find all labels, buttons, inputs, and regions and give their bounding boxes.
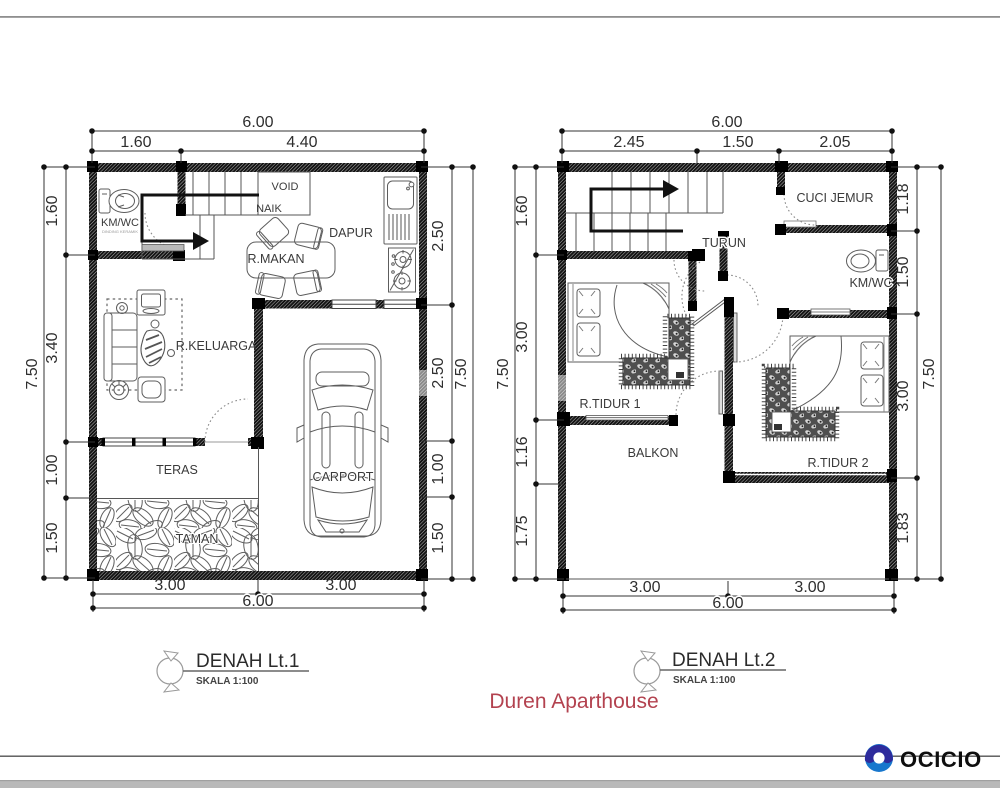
svg-text:7.50: 7.50: [453, 358, 470, 389]
svg-text:1.60: 1.60: [44, 195, 61, 226]
svg-text:DINDING KERAMIK: DINDING KERAMIK: [102, 229, 138, 234]
svg-text:1.18: 1.18: [895, 183, 912, 214]
svg-text:7.50: 7.50: [495, 358, 512, 389]
svg-text:3.00: 3.00: [514, 321, 531, 352]
svg-text:TURUN: TURUN: [702, 236, 746, 250]
svg-text:VOID: VOID: [272, 181, 299, 193]
svg-text:SKALA 1:100: SKALA 1:100: [196, 676, 259, 687]
svg-text:DENAH Lt.1: DENAH Lt.1: [196, 651, 299, 672]
svg-text:R.TIDUR 2: R.TIDUR 2: [807, 456, 868, 470]
svg-text:3.00: 3.00: [325, 577, 356, 594]
svg-text:3.00: 3.00: [794, 579, 825, 596]
svg-text:NAIK: NAIK: [256, 203, 282, 215]
svg-text:2.45: 2.45: [613, 134, 644, 151]
svg-text:Duren Aparthouse: Duren Aparthouse: [489, 690, 658, 713]
svg-text:1.16: 1.16: [514, 436, 531, 467]
svg-text:KM/WC: KM/WC: [101, 217, 139, 229]
svg-text:TAMAN: TAMAN: [176, 532, 219, 546]
svg-text:OCICIO: OCICIO: [900, 747, 982, 772]
svg-text:6.00: 6.00: [242, 114, 273, 131]
svg-text:1.00: 1.00: [430, 453, 447, 484]
svg-text:DAPUR: DAPUR: [329, 226, 373, 240]
svg-text:1.50: 1.50: [44, 522, 61, 553]
svg-text:3.00: 3.00: [895, 380, 912, 411]
svg-text:3.40: 3.40: [44, 332, 61, 363]
svg-text:KM/WC: KM/WC: [849, 276, 892, 290]
svg-text:2.50: 2.50: [430, 357, 447, 388]
svg-text:2.05: 2.05: [819, 134, 850, 151]
svg-text:CARPORT: CARPORT: [313, 470, 374, 484]
svg-text:7.50: 7.50: [24, 358, 41, 389]
svg-text:1.75: 1.75: [514, 515, 531, 546]
svg-text:1.50: 1.50: [722, 134, 753, 151]
svg-text:6.00: 6.00: [711, 114, 742, 131]
svg-text:1.60: 1.60: [514, 195, 531, 226]
svg-text:3.00: 3.00: [629, 579, 660, 596]
svg-text:1.60: 1.60: [120, 134, 151, 151]
svg-text:6.00: 6.00: [712, 595, 743, 612]
svg-text:SKALA 1:100: SKALA 1:100: [673, 675, 736, 686]
svg-text:1.50: 1.50: [895, 256, 912, 287]
svg-text:R.KELUARGA: R.KELUARGA: [176, 339, 257, 353]
svg-text:BALKON: BALKON: [628, 446, 679, 460]
svg-text:R.MAKAN: R.MAKAN: [248, 252, 305, 266]
svg-text:TERAS: TERAS: [156, 463, 198, 477]
svg-text:1.00: 1.00: [44, 454, 61, 485]
svg-text:2.50: 2.50: [430, 220, 447, 251]
svg-text:7.50: 7.50: [921, 358, 938, 389]
svg-text:1.83: 1.83: [895, 512, 912, 543]
svg-text:CUCI JEMUR: CUCI JEMUR: [796, 191, 873, 205]
svg-text:R.TIDUR 1: R.TIDUR 1: [579, 397, 640, 411]
svg-text:6.00: 6.00: [242, 593, 273, 610]
svg-text:DENAH Lt.2: DENAH Lt.2: [672, 650, 775, 671]
svg-text:4.40: 4.40: [286, 134, 317, 151]
svg-text:1.50: 1.50: [430, 522, 447, 553]
svg-text:3.00: 3.00: [154, 577, 185, 594]
